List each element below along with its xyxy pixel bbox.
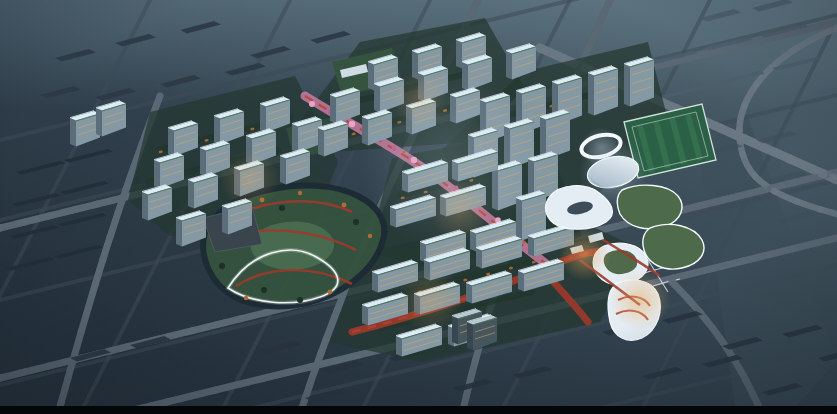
vignette (0, 0, 837, 414)
letterbox-bar (0, 406, 837, 414)
rendering-canvas (0, 0, 837, 414)
aerial-masterplan-rendering (0, 0, 837, 414)
